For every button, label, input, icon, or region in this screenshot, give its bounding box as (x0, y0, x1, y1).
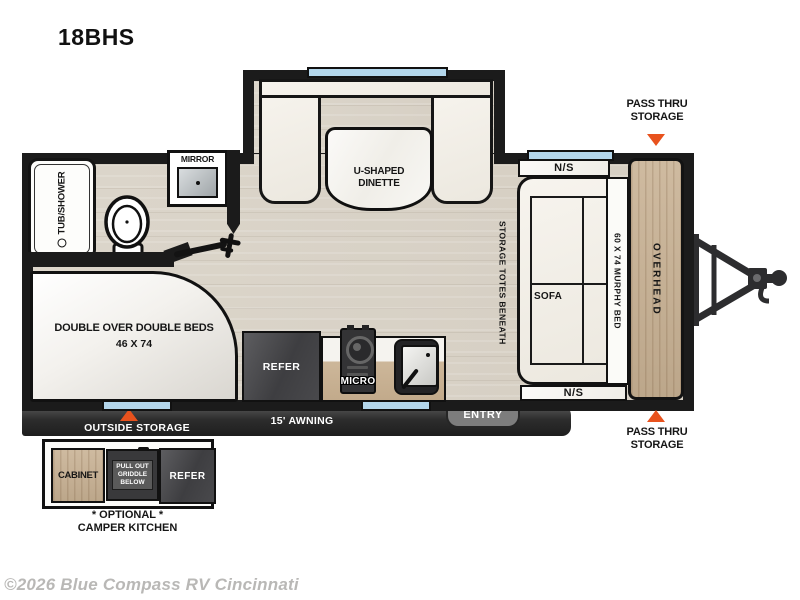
storage-totes-area: STORAGE TOTES BENEATH (495, 210, 510, 356)
camper-kitchen-griddle: PULL OUT GRIDDLE BELOW (106, 449, 159, 501)
overhead-label: OVERHEAD (631, 161, 681, 397)
bathroom-wall (227, 150, 240, 234)
griddle-handle-icon (138, 447, 149, 451)
floorplan-canvas: 18BHS OUTSIDE STORAGE 15' AWNING ENTRY U… (0, 0, 800, 600)
camper-kitchen-caption: * OPTIONAL * CAMPER KITCHEN (30, 509, 225, 535)
camper-kitchen-refer: REFER (159, 448, 216, 504)
murphy-bed: 60 X 74 MURPHY BED (606, 177, 629, 385)
dinette-bench-back (259, 79, 493, 98)
overhead-cabinet: OVERHEAD (628, 158, 684, 400)
tub-shower-label: TUB/SHOWER (57, 171, 68, 234)
kitchen-sink (394, 339, 439, 395)
pass-thru-bottom-label: PASS THRU STORAGE (612, 426, 702, 452)
outside-storage-label: OUTSIDE STORAGE (52, 422, 222, 434)
pass-thru-bottom-marker-icon (647, 410, 665, 422)
micro-label: MICRO (333, 376, 383, 387)
double-beds: DOUBLE OVER DOUBLE BEDS 46 X 74 (30, 271, 238, 402)
refer-label: REFER (263, 361, 301, 373)
mirror-label: MIRROR (170, 154, 225, 164)
griddle-label: PULL OUT GRIDDLE BELOW (112, 460, 153, 490)
slideout-window (307, 67, 448, 78)
shower-drain-icon (58, 238, 67, 247)
dinette-label: U-SHAPED DINETTE (342, 166, 416, 190)
beds-label: DOUBLE OVER DOUBLE BEDS (54, 322, 213, 334)
pass-thru-top-marker-icon (647, 134, 665, 146)
toilet-icon (100, 194, 154, 260)
dinette-table: U-SHAPED DINETTE (325, 127, 433, 211)
door-latch-icon (214, 230, 244, 261)
trailer-hitch-icon (680, 220, 795, 342)
nightstand-bottom: N/S (520, 385, 627, 401)
beds-size-label: 46 X 74 (116, 338, 152, 350)
refrigerator: REFER (242, 331, 321, 402)
burner-icon (346, 336, 374, 364)
awning-label: 15' AWNING (232, 415, 372, 427)
murphy-bed-label: 60 X 74 MURPHY BED (608, 179, 627, 383)
stove-microwave: MICRO (340, 328, 376, 394)
camper-kitchen-cabinet: CABINET (51, 448, 105, 503)
nightstand-top: N/S (518, 159, 610, 177)
model-title: 18BHS (58, 24, 135, 51)
bedroom-wall (22, 252, 174, 267)
dealer-watermark: ©2026 Blue Compass RV Cincinnati (4, 575, 299, 595)
storage-totes-label: STORAGE TOTES BENEATH (495, 210, 510, 356)
sofa-label: SOFA (534, 291, 562, 302)
sofa: SOFA (517, 176, 611, 385)
camper-kitchen-box: CABINET PULL OUT GRIDDLE BELOW REFER (42, 439, 214, 509)
tub-shower: TUB/SHOWER (28, 158, 96, 260)
pass-thru-top-label: PASS THRU STORAGE (612, 98, 702, 124)
sink-mirror-glass (177, 167, 218, 198)
mirror-cabinet: MIRROR (167, 150, 228, 207)
